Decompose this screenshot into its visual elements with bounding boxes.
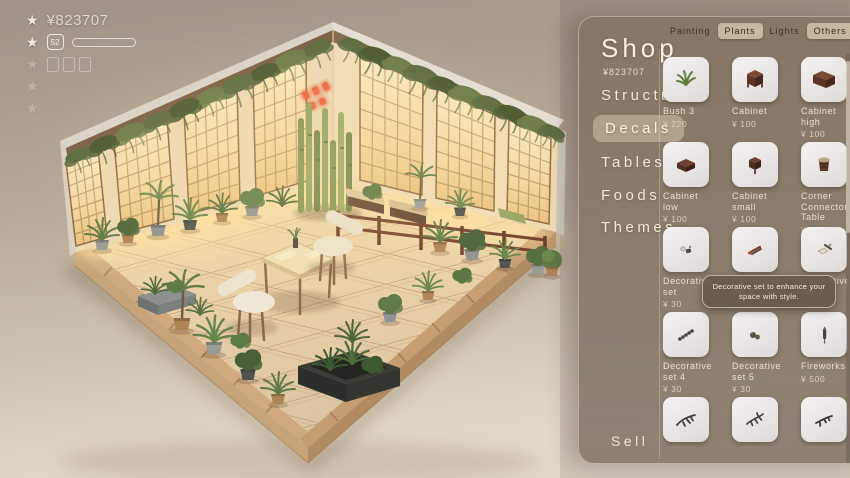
decorative-set-icon	[671, 235, 701, 265]
category-foods[interactable]: Foods	[601, 187, 660, 204]
star-icon-faint: ★	[26, 56, 39, 72]
item-thumbnail	[663, 57, 709, 102]
scrollbar-track[interactable]	[846, 53, 850, 463]
cabinet-high-icon	[809, 65, 839, 95]
item-grid: Bush 3 ¥ 220 Cabinet ¥ 100	[663, 57, 847, 447]
item-thumbnail	[663, 312, 709, 357]
game-screen: ★ ¥823707 ★ 52 ★ ★ ★ Painting Plants Lig…	[0, 0, 850, 478]
reward-slot	[47, 57, 59, 72]
shop-item-cabinet-small[interactable]: Cabinet small ¥ 100	[732, 142, 778, 227]
item-thumbnail	[801, 397, 847, 442]
currency-amount: ¥823707	[47, 12, 109, 29]
currency-row: ★ ¥823707	[26, 12, 136, 28]
decorative-set-3-icon	[809, 235, 839, 265]
reward-slot	[63, 57, 75, 72]
corner-table-icon	[809, 150, 839, 180]
shop-item-cabinet-high[interactable]: Cabinet high ¥ 100	[801, 57, 847, 142]
level-badge: 52	[47, 34, 64, 50]
reward-slots	[47, 57, 91, 72]
item-thumbnail	[732, 227, 778, 272]
shop-item-decorative-set-4[interactable]: Decorative set 4 ¥ 30	[663, 312, 709, 397]
hud: ★ ¥823707 ★ 52 ★ ★ ★	[26, 12, 136, 116]
branch-icon	[671, 405, 701, 435]
shop-panel: Painting Plants Lights Others Shop ¥8237…	[578, 16, 850, 464]
decorative-set-2-icon	[740, 235, 770, 265]
level-row: ★ 52	[26, 34, 136, 50]
item-thumbnail	[663, 397, 709, 442]
item-thumbnail	[732, 142, 778, 187]
shop-item-branch[interactable]	[801, 397, 847, 447]
tab-lights[interactable]: Lights	[763, 23, 807, 39]
item-thumbnail	[663, 142, 709, 187]
star-icon-faint: ★	[26, 78, 39, 94]
branch-icon	[809, 405, 839, 435]
item-thumbnail	[801, 142, 847, 187]
star-icon: ★	[26, 12, 39, 28]
item-thumbnail	[663, 227, 709, 272]
shop-balance: ¥823707	[603, 67, 645, 77]
shop-item-branch[interactable]	[732, 397, 778, 447]
xp-progress-bar	[72, 38, 136, 47]
item-thumbnail	[732, 397, 778, 442]
shop-item-fireworks[interactable]: Fireworks ¥ 500	[801, 312, 847, 397]
tab-plants[interactable]: Plants	[718, 23, 763, 39]
cabinet-icon	[740, 65, 770, 95]
item-thumbnail	[801, 227, 847, 272]
decorative-set-5-icon	[740, 320, 770, 350]
shop-tabs: Painting Plants Lights Others	[663, 23, 847, 39]
reward-slot	[79, 57, 91, 72]
shop-item-decorative-set-5[interactable]: Decorative set 5 ¥ 30	[732, 312, 778, 397]
panel-divider	[659, 49, 660, 459]
fireworks-icon	[809, 320, 839, 350]
star-icon-faint: ★	[26, 100, 39, 116]
shop-item-cabinet-low[interactable]: Cabinet low ¥ 100	[663, 142, 709, 227]
item-thumbnail	[801, 312, 847, 357]
shop-item-bush-3[interactable]: Bush 3 ¥ 220	[663, 57, 709, 142]
category-tables[interactable]: Tables	[601, 154, 665, 171]
branch-icon	[740, 405, 770, 435]
reward-row: ★	[26, 56, 136, 72]
scrollbar-thumb[interactable]	[846, 61, 850, 233]
star-icon: ★	[26, 34, 39, 50]
sell-button[interactable]: Sell	[611, 433, 648, 449]
item-thumbnail	[732, 312, 778, 357]
cabinet-small-icon	[740, 150, 770, 180]
shop-item-cabinet[interactable]: Cabinet ¥ 100	[732, 57, 778, 142]
shop-item-corner-connector-table[interactable]: Corner Connector Table ¥ 100	[801, 142, 847, 227]
decorative-set-4-icon	[671, 320, 701, 350]
item-thumbnail	[732, 57, 778, 102]
shop-item-branch[interactable]	[663, 397, 709, 447]
item-thumbnail	[801, 57, 847, 102]
item-tooltip: Decorative set to enhance your space wit…	[702, 275, 836, 308]
tab-others[interactable]: Others	[807, 23, 850, 39]
bush-icon	[671, 65, 701, 95]
cabinet-low-icon	[671, 150, 701, 180]
